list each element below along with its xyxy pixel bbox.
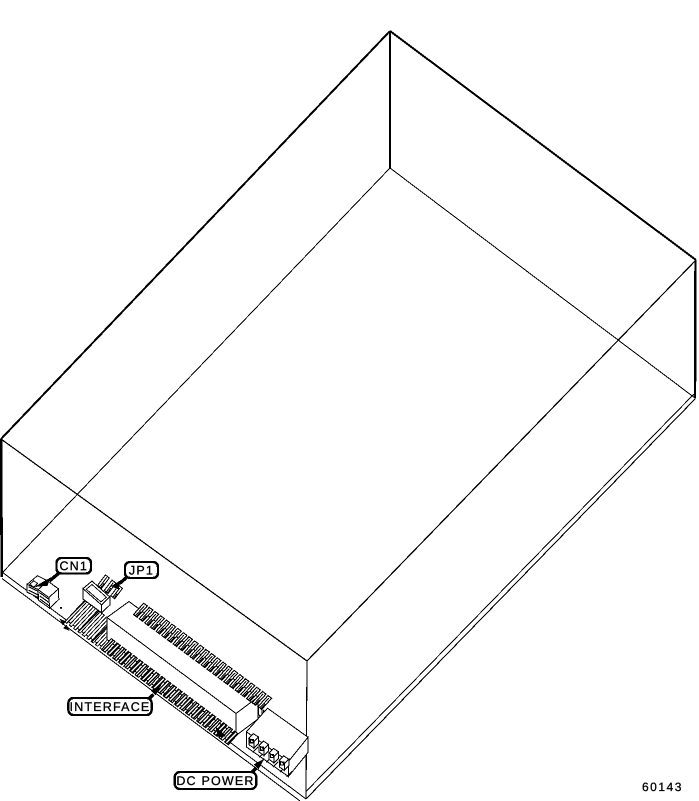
svg-text:DC POWER: DC POWER <box>176 774 254 788</box>
svg-text:INTERFACE: INTERFACE <box>70 700 151 714</box>
svg-text:JP1: JP1 <box>129 563 154 577</box>
svg-text:60143: 60143 <box>642 780 683 794</box>
svg-text:CN1: CN1 <box>59 559 88 573</box>
